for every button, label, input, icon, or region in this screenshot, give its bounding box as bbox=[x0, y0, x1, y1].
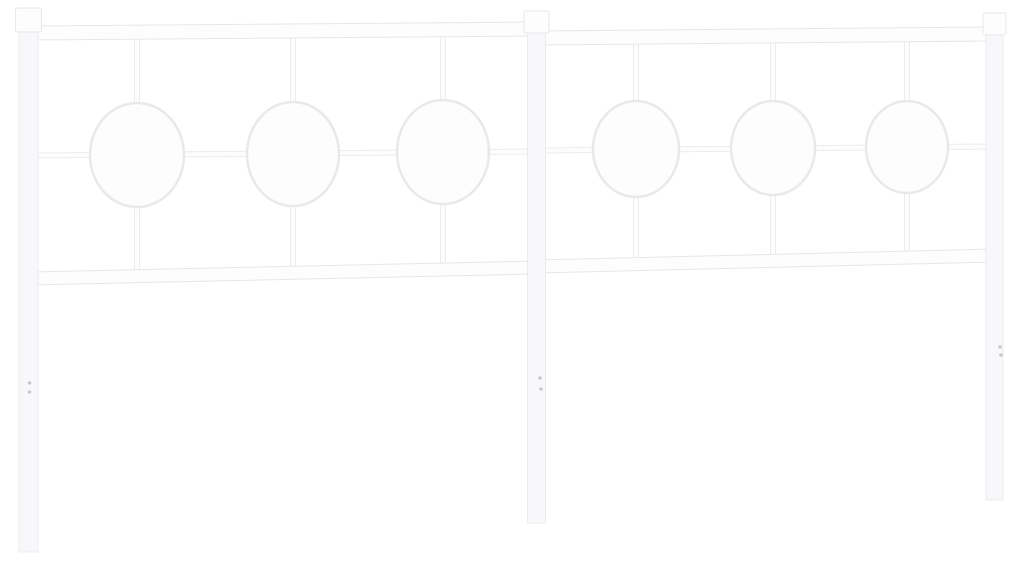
headboard-illustration bbox=[0, 0, 1013, 563]
spindle-top bbox=[291, 34, 296, 105]
ring-ornament bbox=[731, 101, 815, 195]
post-center bbox=[524, 11, 549, 523]
spindle-bottom bbox=[905, 191, 910, 255]
spindle-bottom bbox=[771, 192, 776, 258]
spindle-top bbox=[441, 33, 446, 103]
top-rail-left bbox=[30, 22, 536, 40]
spindle-top bbox=[135, 36, 140, 106]
finial-cap-left bbox=[16, 8, 42, 32]
headboard-product-photo bbox=[0, 0, 1013, 563]
screw-hole bbox=[539, 387, 543, 390]
finial-cap-right bbox=[983, 13, 1006, 35]
ring-ornament bbox=[866, 101, 948, 193]
spindle-bottom bbox=[291, 202, 296, 268]
top-rail-right bbox=[538, 27, 995, 45]
ring-ornament bbox=[593, 101, 679, 197]
bottom-rail-left bbox=[30, 261, 536, 285]
spindle-top bbox=[634, 42, 639, 104]
spindle-top bbox=[905, 40, 910, 102]
leg-left bbox=[19, 20, 38, 552]
panel-left bbox=[30, 22, 536, 285]
ring-ornament bbox=[90, 103, 184, 207]
ring-ornament bbox=[397, 100, 489, 204]
leg-right bbox=[986, 32, 1003, 500]
post-right bbox=[983, 13, 1006, 500]
finial-cap-center bbox=[524, 11, 549, 33]
post-left bbox=[16, 8, 42, 552]
ring-ornament bbox=[247, 102, 339, 206]
spindle-top bbox=[771, 41, 776, 103]
screw-hole bbox=[998, 345, 1002, 348]
screw-hole bbox=[28, 381, 32, 384]
panel-right bbox=[538, 27, 995, 273]
spindle-bottom bbox=[135, 203, 140, 273]
screw-hole bbox=[538, 376, 542, 379]
spindle-bottom bbox=[441, 200, 446, 264]
leg-center bbox=[528, 30, 546, 523]
screw-hole bbox=[999, 353, 1003, 356]
spindle-bottom bbox=[634, 193, 639, 262]
bottom-rail-right bbox=[538, 249, 995, 273]
screw-hole bbox=[28, 390, 32, 393]
